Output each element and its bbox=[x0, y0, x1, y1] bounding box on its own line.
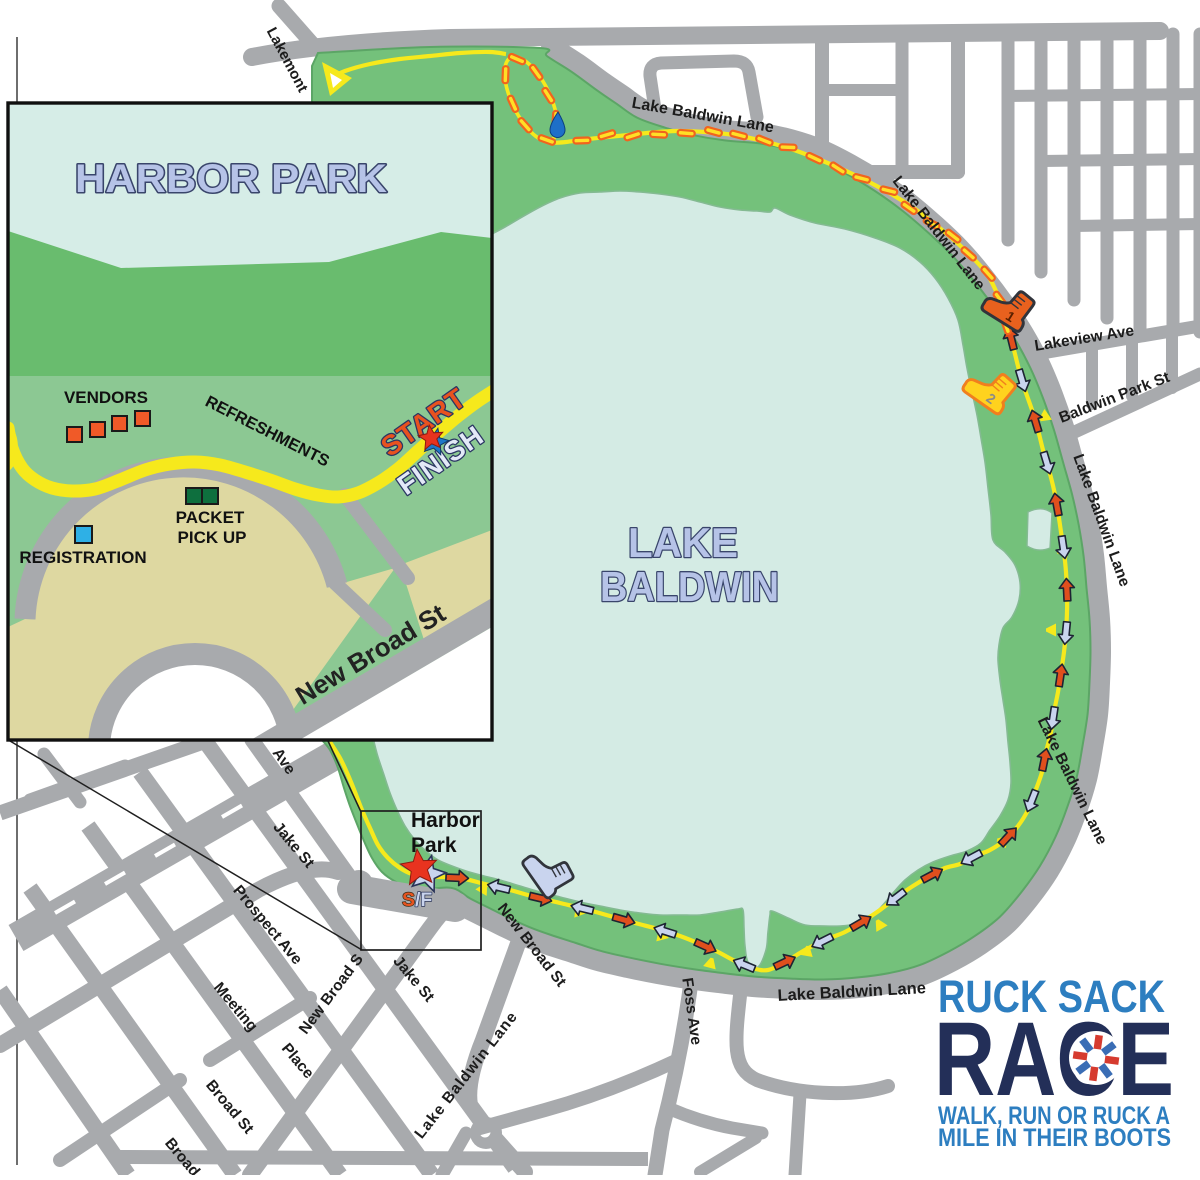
svg-text:PICK UP: PICK UP bbox=[178, 528, 247, 547]
svg-text:Harbor: Harbor bbox=[411, 809, 480, 832]
svg-text:S/F: S/F bbox=[402, 889, 432, 911]
svg-text:VENDORS: VENDORS bbox=[64, 388, 148, 407]
svg-text:RACE: RACE bbox=[934, 1001, 1174, 1118]
svg-text:MILE IN THEIR BOOTS: MILE IN THEIR BOOTS bbox=[938, 1124, 1171, 1152]
svg-text:LAKE: LAKE bbox=[628, 519, 738, 566]
svg-text:BALDWIN: BALDWIN bbox=[600, 563, 779, 610]
svg-text:REGISTRATION: REGISTRATION bbox=[19, 548, 146, 567]
svg-text:PACKET: PACKET bbox=[176, 508, 245, 527]
svg-text:HARBOR PARK: HARBOR PARK bbox=[75, 157, 387, 201]
